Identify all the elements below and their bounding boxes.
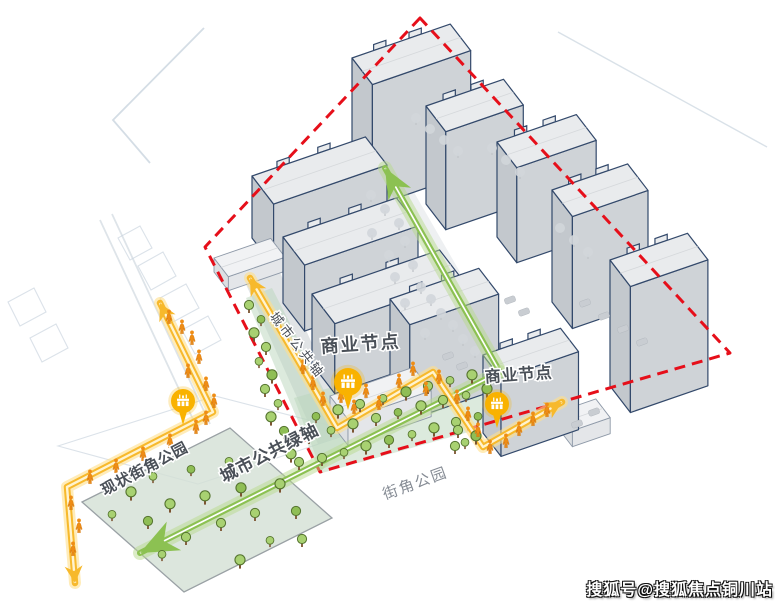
- crown: [327, 426, 335, 434]
- background-building-outline: [8, 288, 46, 326]
- head: [88, 470, 92, 474]
- crown: [200, 491, 210, 501]
- crown: [474, 412, 482, 420]
- crown: [244, 300, 253, 309]
- background-road-line: [558, 32, 767, 147]
- pedestrian-icon: [189, 331, 195, 345]
- head: [531, 412, 535, 416]
- crown: [401, 387, 411, 397]
- shop-icon: [496, 404, 499, 409]
- crown: [408, 260, 418, 270]
- tree-icon: [297, 534, 306, 547]
- head: [141, 447, 145, 451]
- crown: [394, 218, 404, 228]
- crown: [416, 401, 426, 411]
- shop-icon: [343, 374, 344, 378]
- pin-circle: [485, 392, 509, 416]
- crown: [333, 405, 343, 415]
- pin-circle: [171, 389, 195, 413]
- head: [180, 320, 184, 324]
- shop-icon: [493, 398, 494, 402]
- crown: [462, 391, 470, 399]
- shop-icon: [186, 401, 189, 406]
- head: [167, 310, 171, 314]
- tree-icon: [267, 370, 277, 384]
- label-corner-park: 街角公园: [381, 464, 451, 503]
- tree-icon: [261, 342, 270, 355]
- shop-icon: [182, 395, 184, 398]
- crown: [515, 167, 525, 177]
- crown: [126, 487, 136, 497]
- crown: [400, 236, 410, 246]
- crown: [108, 510, 116, 518]
- background-building-outline: [138, 252, 176, 290]
- crown: [438, 395, 447, 404]
- crown: [274, 399, 282, 407]
- body: [76, 522, 82, 532]
- shop-icon: [182, 401, 185, 406]
- crown: [158, 550, 166, 558]
- shop-icon: [341, 379, 355, 382]
- crown: [467, 370, 477, 380]
- shop-icon: [347, 376, 349, 379]
- tree-icon: [255, 357, 263, 368]
- tree-icon: [450, 441, 459, 454]
- body: [196, 353, 202, 363]
- crown: [235, 555, 245, 565]
- crown: [317, 453, 326, 462]
- background-road-line: [113, 28, 204, 163]
- head: [114, 459, 118, 463]
- head: [377, 396, 381, 400]
- crown: [426, 294, 436, 304]
- head: [488, 440, 492, 444]
- crown: [266, 536, 274, 544]
- pedestrian-icon: [196, 350, 202, 364]
- head: [397, 374, 401, 378]
- crown: [411, 113, 421, 123]
- crown: [425, 124, 435, 134]
- head: [437, 370, 441, 374]
- crown: [384, 250, 394, 260]
- background-building-outline: [118, 226, 152, 260]
- crown: [255, 357, 263, 365]
- crown: [400, 298, 410, 308]
- crown: [355, 399, 364, 408]
- crown: [267, 370, 277, 380]
- crown: [250, 508, 259, 517]
- crown: [380, 204, 390, 214]
- crown: [266, 412, 276, 422]
- tree-icon: [274, 399, 282, 410]
- head: [212, 394, 216, 398]
- head: [424, 382, 428, 386]
- shop-icon: [491, 402, 503, 404]
- head: [321, 392, 325, 396]
- head: [186, 364, 190, 368]
- shop-icon: [186, 395, 187, 399]
- tree-icon: [461, 438, 469, 449]
- head: [411, 362, 415, 366]
- crown: [420, 328, 430, 338]
- crown: [143, 516, 152, 525]
- crown: [367, 228, 377, 238]
- shop-icon: [496, 398, 498, 401]
- crown: [371, 413, 380, 422]
- crown: [165, 499, 175, 509]
- head: [168, 434, 172, 438]
- crown: [583, 247, 593, 257]
- head: [69, 496, 73, 500]
- crown: [458, 334, 468, 344]
- crown: [569, 235, 579, 245]
- crown: [187, 465, 195, 473]
- pedestrian-icon: [76, 519, 82, 533]
- crown: [453, 146, 463, 156]
- crown: [501, 155, 511, 165]
- head: [71, 542, 75, 546]
- shop-icon: [351, 374, 352, 378]
- head: [455, 390, 459, 394]
- car-icon: [518, 307, 530, 316]
- car-icon: [504, 295, 516, 304]
- crown: [448, 320, 458, 330]
- crown: [390, 272, 400, 282]
- head: [545, 403, 549, 407]
- head: [504, 434, 508, 438]
- crown: [439, 135, 449, 145]
- crown: [340, 448, 348, 456]
- crown: [275, 479, 285, 489]
- head: [197, 350, 201, 354]
- crown: [436, 308, 446, 318]
- crown: [291, 506, 300, 515]
- shop-icon: [500, 398, 501, 402]
- crown: [297, 534, 306, 543]
- crown: [312, 412, 320, 420]
- shop-icon: [346, 383, 349, 388]
- crown: [249, 328, 259, 338]
- crown: [361, 441, 371, 451]
- crown: [260, 384, 269, 393]
- head: [352, 400, 356, 404]
- crown: [416, 282, 426, 292]
- shop-icon: [342, 383, 345, 388]
- head: [204, 411, 208, 415]
- tree-icon: [249, 328, 259, 342]
- crown: [261, 342, 270, 351]
- head: [77, 519, 81, 523]
- crown: [429, 423, 439, 433]
- shop-icon: [351, 383, 354, 388]
- crown: [453, 425, 462, 434]
- shop-icon: [179, 395, 180, 399]
- crown: [236, 483, 246, 493]
- crown: [461, 438, 469, 446]
- crown: [394, 408, 402, 416]
- crown: [487, 143, 497, 153]
- crown: [257, 315, 265, 323]
- crown: [384, 435, 393, 444]
- site-plan-diagram: 商业节点商业节点城市公共轴城市公共绿轴现状街角公园街角公园 搜狐号@搜狐焦点铜川…: [0, 0, 775, 605]
- watermark: 搜狐号@搜狐焦点铜川站: [586, 576, 773, 600]
- crown: [450, 441, 459, 450]
- head: [190, 331, 194, 335]
- crown: [408, 430, 416, 438]
- shop-icon: [177, 401, 180, 406]
- shop-icon: [500, 404, 503, 409]
- head: [517, 422, 521, 426]
- tree-icon: [260, 384, 269, 397]
- head: [466, 407, 470, 411]
- tree-icon: [235, 555, 245, 569]
- crown: [181, 532, 190, 541]
- crown: [366, 190, 376, 200]
- head: [476, 423, 480, 427]
- tree-icon: [453, 425, 462, 438]
- crown: [555, 223, 565, 233]
- head: [194, 420, 198, 424]
- crown: [348, 419, 358, 429]
- building: [610, 233, 708, 412]
- crown: [294, 457, 303, 466]
- shop-icon: [491, 404, 494, 409]
- crown: [216, 518, 225, 527]
- head: [204, 377, 208, 381]
- crown: [446, 376, 454, 384]
- plan-canvas: 商业节点商业节点城市公共轴城市公共绿轴现状街角公园街角公园: [0, 0, 775, 605]
- shop-icon: [177, 399, 189, 401]
- tree-icon: [266, 412, 276, 426]
- background-building-outline: [30, 324, 68, 362]
- pin-circle: [334, 368, 362, 396]
